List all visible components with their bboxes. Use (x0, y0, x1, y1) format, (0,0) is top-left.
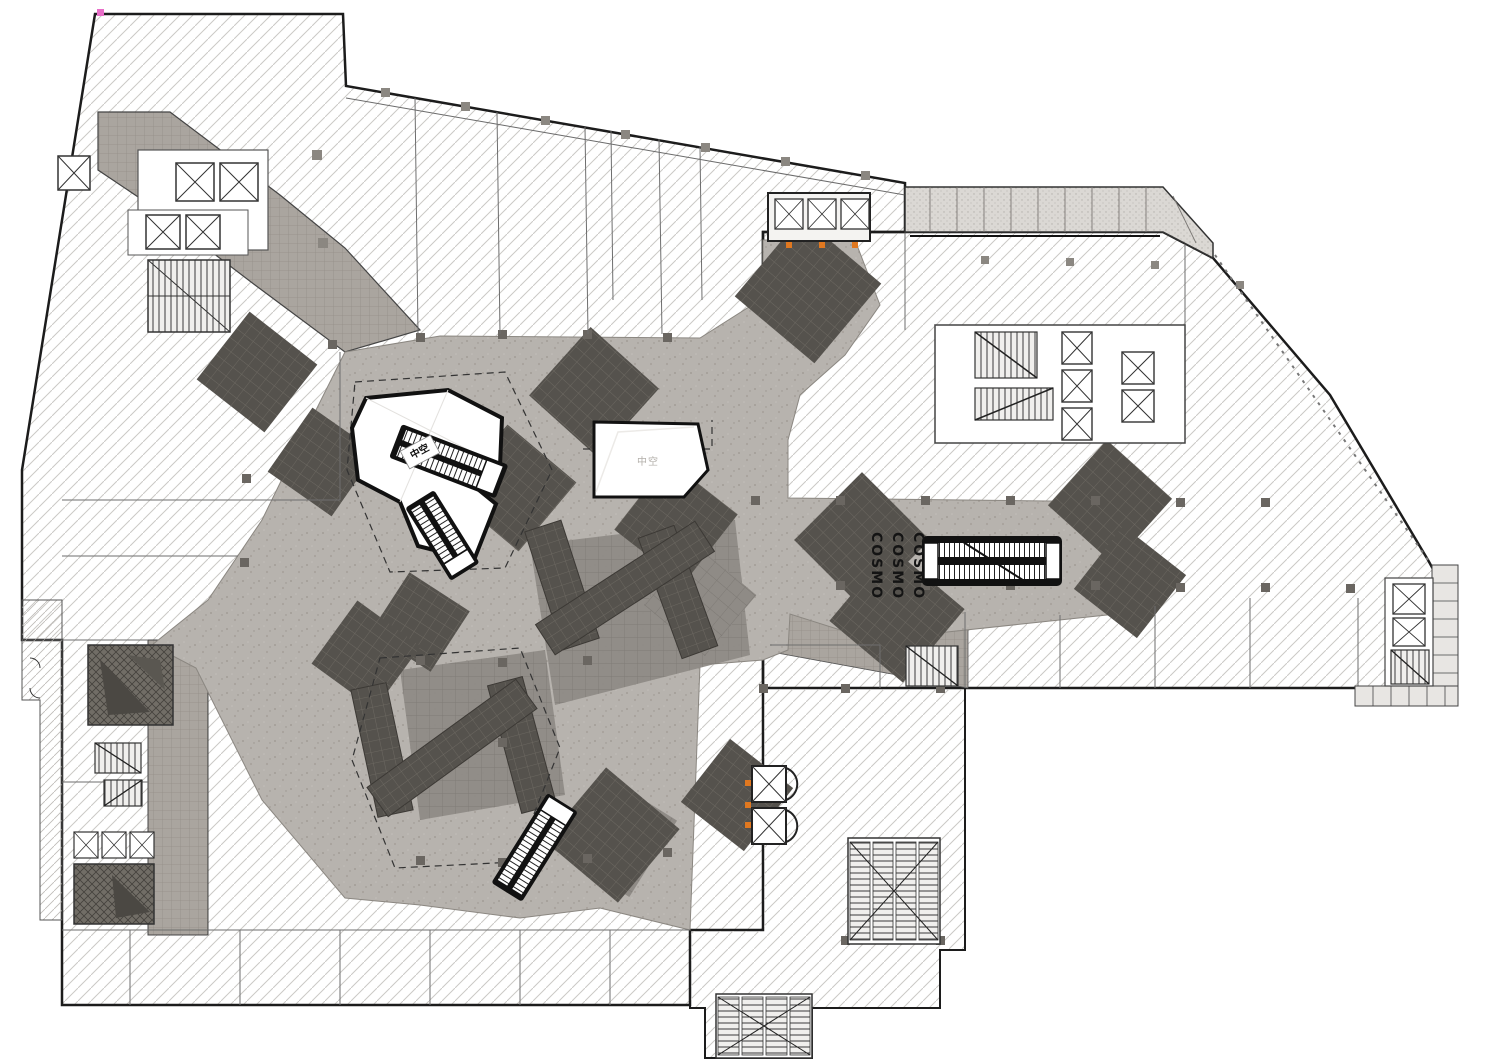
elevator (1122, 352, 1154, 384)
east-escalator-unit (922, 536, 1062, 586)
south-grand-stair-east (848, 838, 940, 944)
stair-run (95, 743, 141, 773)
accent-marks (97, 9, 104, 16)
north-elevator-lobby (768, 193, 870, 248)
floor-plan-drawing: 中空 中空 COSMO COSMO COSMO (0, 0, 1500, 1061)
south-grand-stair-west (716, 994, 812, 1058)
west-annex-outline (22, 600, 62, 920)
stair-run (975, 388, 1053, 420)
east-wing-core (935, 325, 1185, 443)
brand-text: COSMO (889, 532, 905, 600)
stair-run (1391, 650, 1429, 684)
elevator (1062, 370, 1092, 402)
brand-text: COSMO (868, 532, 884, 600)
elevator (808, 199, 836, 229)
elevator (146, 215, 180, 249)
elevator (220, 163, 258, 201)
stair-run (975, 332, 1037, 378)
corridor-stair (906, 646, 958, 686)
southeast-core (1385, 578, 1433, 686)
elevator (186, 215, 220, 249)
elevator (1122, 390, 1154, 422)
brand-column-text: COSMO COSMO COSMO (868, 532, 926, 600)
grand-stair (148, 260, 230, 332)
pink-survey-mark (97, 9, 104, 16)
elevator (102, 832, 126, 858)
elevator (775, 199, 803, 229)
atrium-void-secondary: 中空 (594, 422, 708, 497)
brand-text: COSMO (910, 532, 926, 600)
stair-run (104, 780, 142, 806)
elevator (74, 832, 98, 858)
elevator (1393, 618, 1425, 646)
elevator (1062, 408, 1092, 440)
floor-plan-canvas: 中空 中空 COSMO COSMO COSMO (0, 0, 1500, 1061)
elevator (58, 156, 90, 190)
elevator (176, 163, 214, 201)
elevator (130, 832, 154, 858)
elevator (1393, 584, 1425, 614)
elevator (1062, 332, 1092, 364)
elevator (841, 199, 869, 229)
void-label-faint: 中空 (637, 455, 659, 468)
